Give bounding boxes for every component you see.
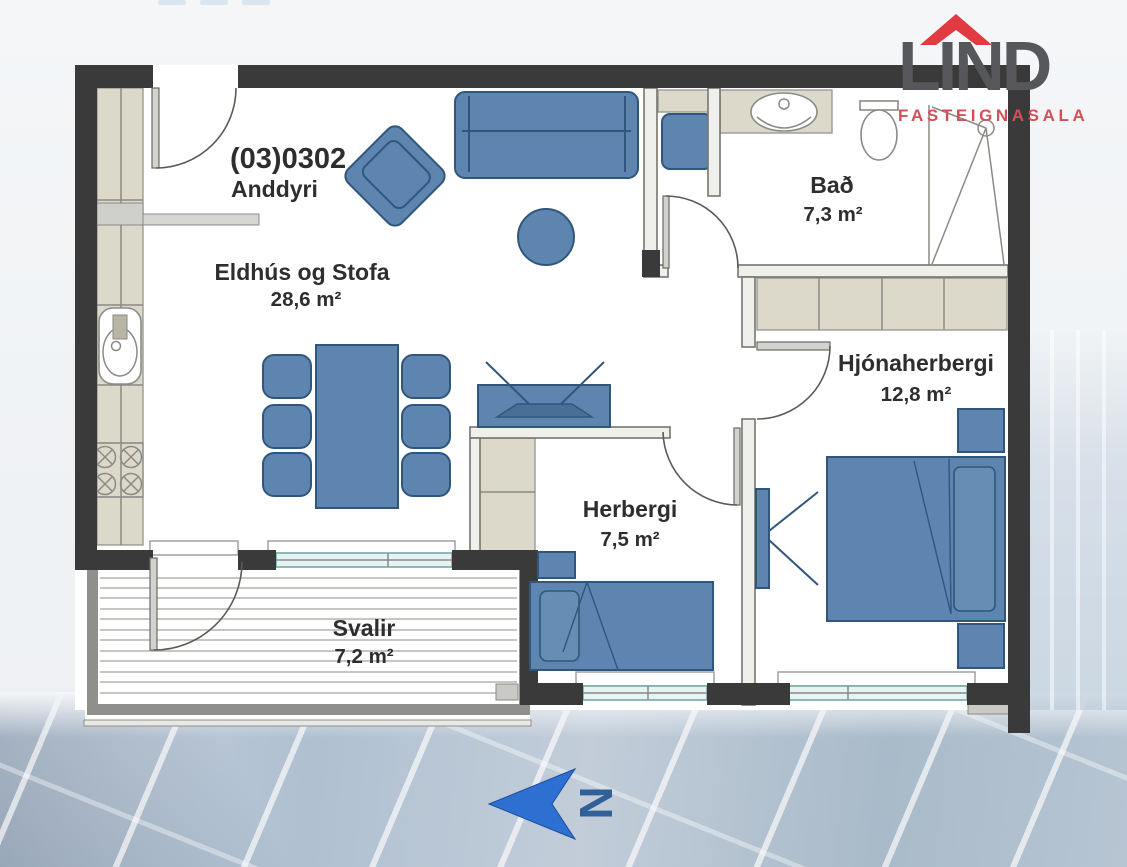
nightstand (958, 624, 1004, 668)
entry-shelf (97, 203, 143, 225)
nightstand (538, 552, 575, 578)
room-area-herbergi: 7,5 m² (600, 528, 659, 551)
wardrobe (472, 438, 535, 552)
toilet (860, 101, 898, 160)
logo-roof-icon (916, 6, 1006, 51)
floor-plan: (03)0302 Anddyri Eldhús og Stofa 28,6 m²… (0, 0, 1127, 867)
room-label-anddyri: Anddyri (231, 176, 318, 202)
bathroom-sink (751, 93, 817, 131)
room-label-eldhus: Eldhús og Stofa (214, 259, 389, 285)
room-label-bad: Bað (810, 172, 853, 198)
north-arrow-icon (489, 769, 575, 839)
small-bedroom-window (576, 672, 714, 700)
wall-tv (756, 489, 769, 588)
dining-table (316, 345, 398, 508)
ottoman (518, 209, 574, 265)
balcony-door-threshold (150, 541, 238, 555)
balcony-railing (84, 720, 531, 726)
screenshot-root: (03)0302 Anddyri Eldhús og Stofa 28,6 m²… (0, 0, 1127, 867)
entrance-door-leaf (152, 88, 159, 168)
dining-chair (263, 355, 311, 398)
room-area-eldhus: 28,6 m² (271, 288, 342, 311)
logo-subtitle: FASTEIGNASALA (898, 106, 1108, 126)
room-label-svalir: Svalir (333, 615, 396, 641)
bedroom-closet (757, 278, 1007, 330)
headboard (954, 467, 995, 611)
sofa (455, 92, 638, 178)
room-area-svalir: 7,2 m² (334, 645, 393, 668)
dining-chair (263, 405, 311, 448)
north-compass: N (489, 769, 622, 839)
north-letter: N (570, 786, 622, 819)
pillow (540, 591, 579, 661)
lind-logo: LIND FASTEIGNASALA (898, 6, 1108, 126)
dining-chair (402, 355, 450, 398)
living-room-window (268, 541, 455, 567)
hall-door-leaf (663, 196, 669, 268)
unit-number: (03)0302 (230, 143, 346, 175)
master-bedroom-door-leaf (757, 342, 830, 350)
room-label-hjonaherbergi: Hjónaherbergi (838, 350, 994, 376)
balcony-door-leaf (150, 558, 157, 650)
hall-chair (662, 114, 712, 169)
room-area-bad: 7,3 m² (803, 203, 862, 226)
small-bedroom-door-leaf (734, 428, 740, 505)
room-area-hjonaherbergi: 12,8 m² (881, 383, 952, 406)
dining-chair (402, 453, 450, 496)
entry-shelf-bar (143, 214, 259, 225)
dining-chair (402, 405, 450, 448)
nightstand (958, 409, 1004, 452)
balcony-drain-box (496, 684, 518, 700)
room-label-herbergi: Herbergi (583, 496, 678, 522)
kitchen-sink (99, 308, 141, 384)
dining-chair (263, 453, 311, 496)
